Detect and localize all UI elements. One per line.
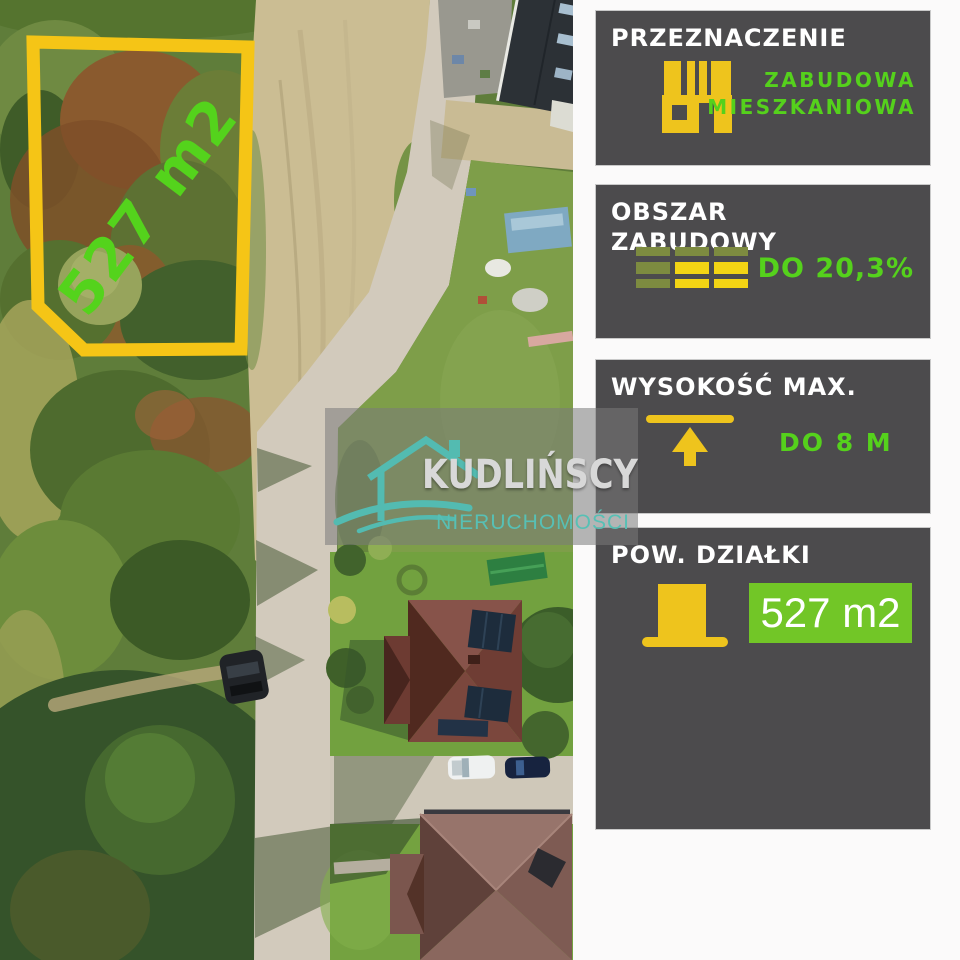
white-car	[448, 755, 496, 780]
solar-panels	[468, 609, 516, 652]
height-limit-icon	[646, 415, 734, 470]
coverage-bars-icon	[636, 247, 748, 291]
plot-area-value-box: 527 m2	[749, 583, 912, 643]
value-line: MIESZKANIOWA	[707, 94, 916, 121]
logo-subtitle: NIERUCHOMOŚCI	[436, 511, 630, 535]
panel-pow-dzialki: POW. DZIAŁKI 527 m2	[595, 527, 931, 830]
panel-value: DO 8 M	[779, 428, 893, 457]
panel-value: DO 20,3%	[758, 253, 914, 284]
panel-przeznaczenie: PRZEZNACZENIE ZABUDOWA MIESZKANIOWA	[595, 10, 931, 166]
panel-title: POW. DZIAŁKI	[611, 540, 811, 570]
blue-tarp-shed	[504, 207, 572, 253]
value-line: ZABUDOWA	[707, 67, 916, 94]
solar-panels	[438, 719, 489, 737]
logo-name: KUDLIŃSCY	[422, 452, 638, 498]
panel-title: PRZEZNACZENIE	[611, 23, 847, 53]
solar-panels	[464, 685, 512, 722]
panel-title: WYSOKOŚĆ MAX.	[611, 372, 857, 402]
chimney	[468, 655, 480, 664]
black-car	[218, 648, 270, 705]
panel-value: ZABUDOWA MIESZKANIOWA	[707, 67, 916, 121]
panel-wysokosc-max: WYSOKOŚĆ MAX. DO 8 M	[595, 359, 931, 514]
panel-obszar-zabudowy: OBSZAR ZABUDOWY DO 20,3%	[595, 184, 931, 339]
plot-area-icon	[642, 584, 728, 648]
agency-logo: KUDLIŃSCY NIERUCHOMOŚCI	[325, 408, 638, 545]
dark-blue-car	[505, 756, 551, 779]
title-line: OBSZAR	[611, 197, 777, 227]
